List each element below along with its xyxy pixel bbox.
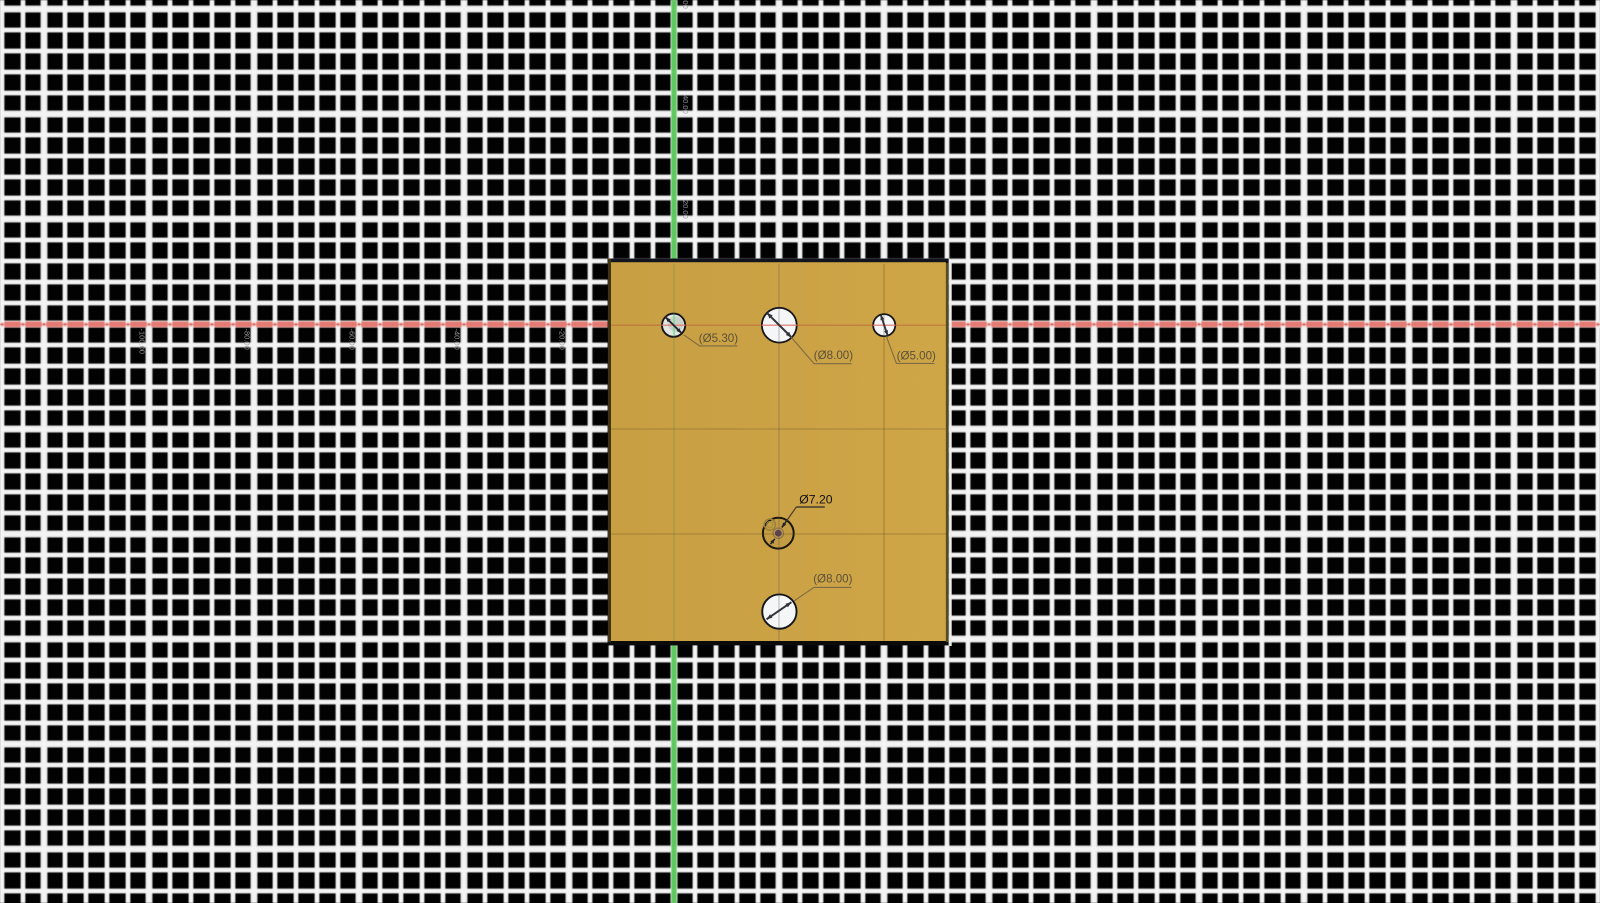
svg-text:-20.00: -20.00 — [558, 329, 567, 350]
svg-text:-60.00: -60.00 — [348, 329, 357, 350]
svg-text:-40.00: -40.00 — [453, 329, 462, 350]
svg-text:(Ø5.00): (Ø5.00) — [897, 350, 936, 363]
svg-text:20.00: 20.00 — [681, 200, 690, 219]
svg-text:60.00: 60.00 — [681, 0, 690, 9]
svg-text:-80.00: -80.00 — [243, 329, 252, 350]
svg-text:(Ø5.30): (Ø5.30) — [699, 332, 738, 345]
svg-text:Ø7.20: Ø7.20 — [799, 492, 832, 506]
svg-text:-100.00: -100.00 — [138, 329, 147, 354]
svg-text:(Ø8.00): (Ø8.00) — [814, 349, 853, 362]
svg-text:40.00: 40.00 — [681, 95, 690, 114]
svg-text:(Ø8.00): (Ø8.00) — [813, 572, 852, 585]
